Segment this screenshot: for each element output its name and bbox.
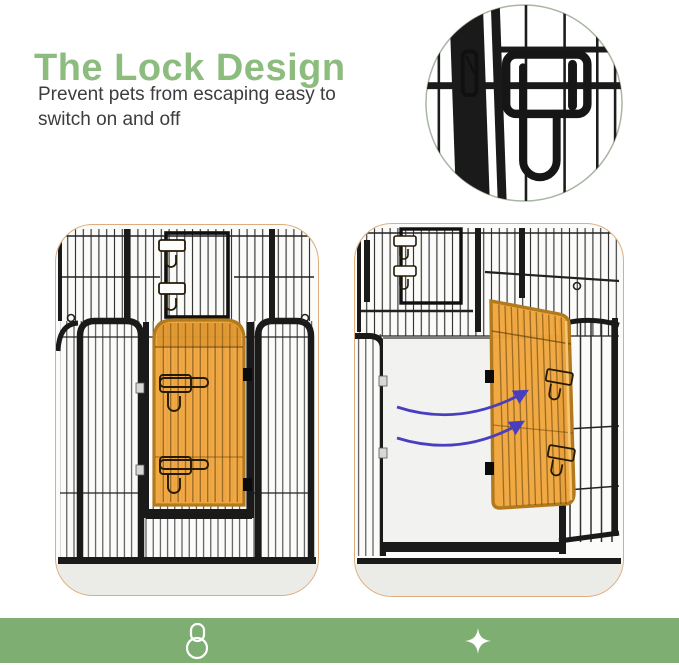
lock-closeup-illustration [423,2,625,204]
padlock-icon [183,622,211,665]
door-closed-illustration [56,225,318,595]
side-fence-wires [567,320,619,542]
door-closed-panel [55,224,319,596]
page-subtitle: Prevent pets from escaping easy to switc… [38,82,398,132]
door-hinge [485,462,494,475]
door-hinge [485,370,494,383]
footer-bar [0,618,679,663]
subtitle-line-1: Prevent pets from escaping easy to [38,82,398,107]
subtitle-line-2: switch on and off [38,107,398,132]
sparkle-icon [463,626,493,661]
lock-closeup-inset [423,2,625,204]
pen-door-highlighted [154,320,252,505]
door-open-illustration [355,224,623,596]
door-open-panel [354,223,624,597]
door-frame-bars [449,2,507,204]
door-hinge [243,478,252,491]
door-hinge [243,368,252,381]
back-fence-wires [60,229,314,321]
